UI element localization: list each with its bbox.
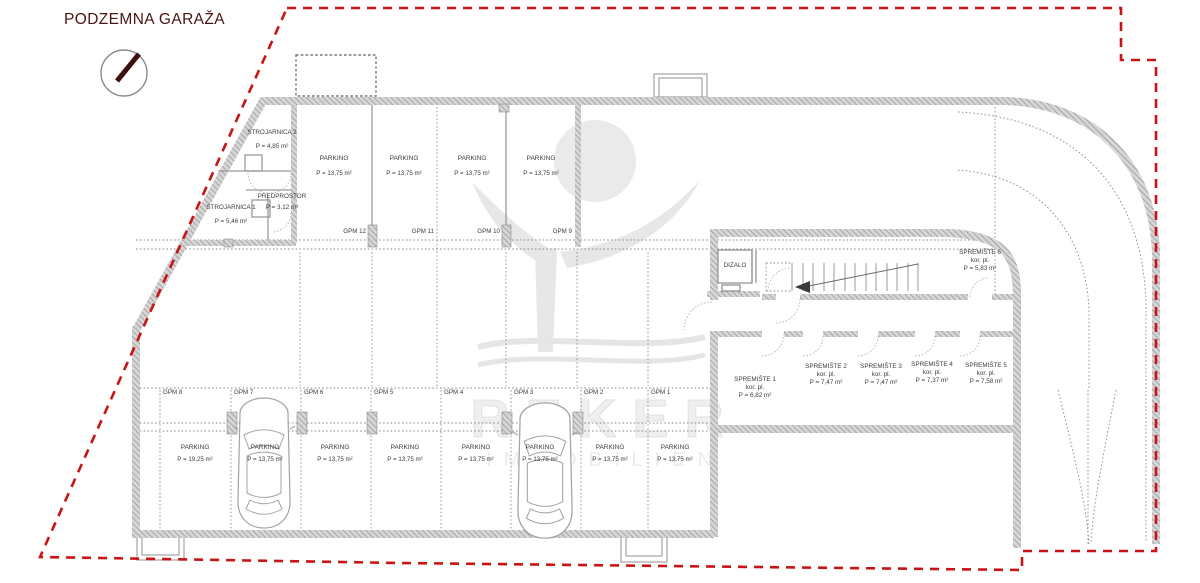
car-top-view xyxy=(233,398,295,528)
gpm-tag-9: GPM 9 xyxy=(553,228,572,235)
room-label-spremiste4: SPREMIŠTE 4 kor. pl. P = 7,37 m² xyxy=(911,361,953,385)
room-label-spremiste1: SPREMIŠTE 1 kor. pl. P = 6,82 m² xyxy=(734,376,776,400)
gpm-tag-6: GPM 6 xyxy=(304,389,323,396)
room-label-spremiste5: SPREMIŠTE 5 kor. pl. P = 7,58 m² xyxy=(965,362,1007,386)
parking-label-gpm2: PARKING P = 13,75 m² xyxy=(592,444,627,463)
parking-label-gpm11: PARKING P = 13,75 m² xyxy=(386,155,421,177)
room-label-strojarnica1: STROJARNICA 1 P = 5,46 m² xyxy=(206,204,255,226)
gpm-tag-3: GPM 3 xyxy=(514,389,533,396)
floorplan-drawing: REKER IMMOBILIEN xyxy=(0,0,1200,583)
room-label-dizalo: DIZALO xyxy=(724,262,747,270)
gpm-tag-5: GPM 5 xyxy=(374,389,393,396)
door-arcs xyxy=(248,173,989,356)
parked-cars xyxy=(233,398,577,538)
parking-label-gpm10: PARKING P = 13,75 m² xyxy=(454,155,489,177)
room-label-predprostor: PREDPROSTOR P = 3,12 m² xyxy=(258,193,307,212)
parking-label-gpm12: PARKING P = 13,75 m² xyxy=(316,155,351,177)
north-arrow-icon xyxy=(101,50,147,96)
gpm-tag-10: GPM 10 xyxy=(477,228,500,235)
room-label-spremiste2: SPREMIŠTE 2 kor. pl. P = 7,47 m² xyxy=(805,363,847,387)
car-top-view xyxy=(513,403,577,538)
parking-label-gpm4: PARKING P = 13,75 m² xyxy=(458,444,493,463)
room-label-strojarnica2: STROJARNICA 2 P = 4,85 m² xyxy=(247,129,296,151)
parking-label-gpm3: PARKING P = 13,75 m² xyxy=(522,444,557,463)
parking-label-gpm7: PARKING P = 13,75 m² xyxy=(247,444,282,463)
skylight-outline xyxy=(296,55,376,96)
parking-label-gpm9: PARKING P = 13,75 m² xyxy=(523,155,558,177)
page-title: PODZEMNA GARAŽA xyxy=(64,11,225,29)
gpm-tag-7: GPM 7 xyxy=(234,389,253,396)
parking-label-gpm1: PARKING P = 13,75 m² xyxy=(657,444,692,463)
gpm-tag-12: GPM 12 xyxy=(343,228,366,235)
elevator-cabin xyxy=(718,250,756,291)
parking-label-gpm6: PARKING P = 13,75 m² xyxy=(317,444,352,463)
room-label-spremiste3: SPREMIŠTE 3 kor. pl. P = 7,47 m² xyxy=(860,363,902,387)
parking-label-gpm5: PARKING P = 13,75 m² xyxy=(387,444,422,463)
gpm-tag-1: GPM 1 xyxy=(651,389,670,396)
staircase xyxy=(792,263,918,293)
gpm-tag-11: GPM 11 xyxy=(412,228,434,235)
floorplan-canvas: REKER IMMOBILIEN xyxy=(0,0,1200,583)
gpm-tag-4: GPM 4 xyxy=(444,389,463,396)
room-label-spremiste6: SPREMIŠTE 6 kor. pl. P = 5,83 m² xyxy=(959,249,1001,273)
property-boundary-line xyxy=(40,8,1156,570)
columns xyxy=(224,104,583,434)
gpm-tag-2: GPM 2 xyxy=(584,389,603,396)
parking-label-gpm8: PARKING P = 19,25 m² xyxy=(177,444,212,463)
gpm-tag-8: GPM 8 xyxy=(163,389,182,396)
